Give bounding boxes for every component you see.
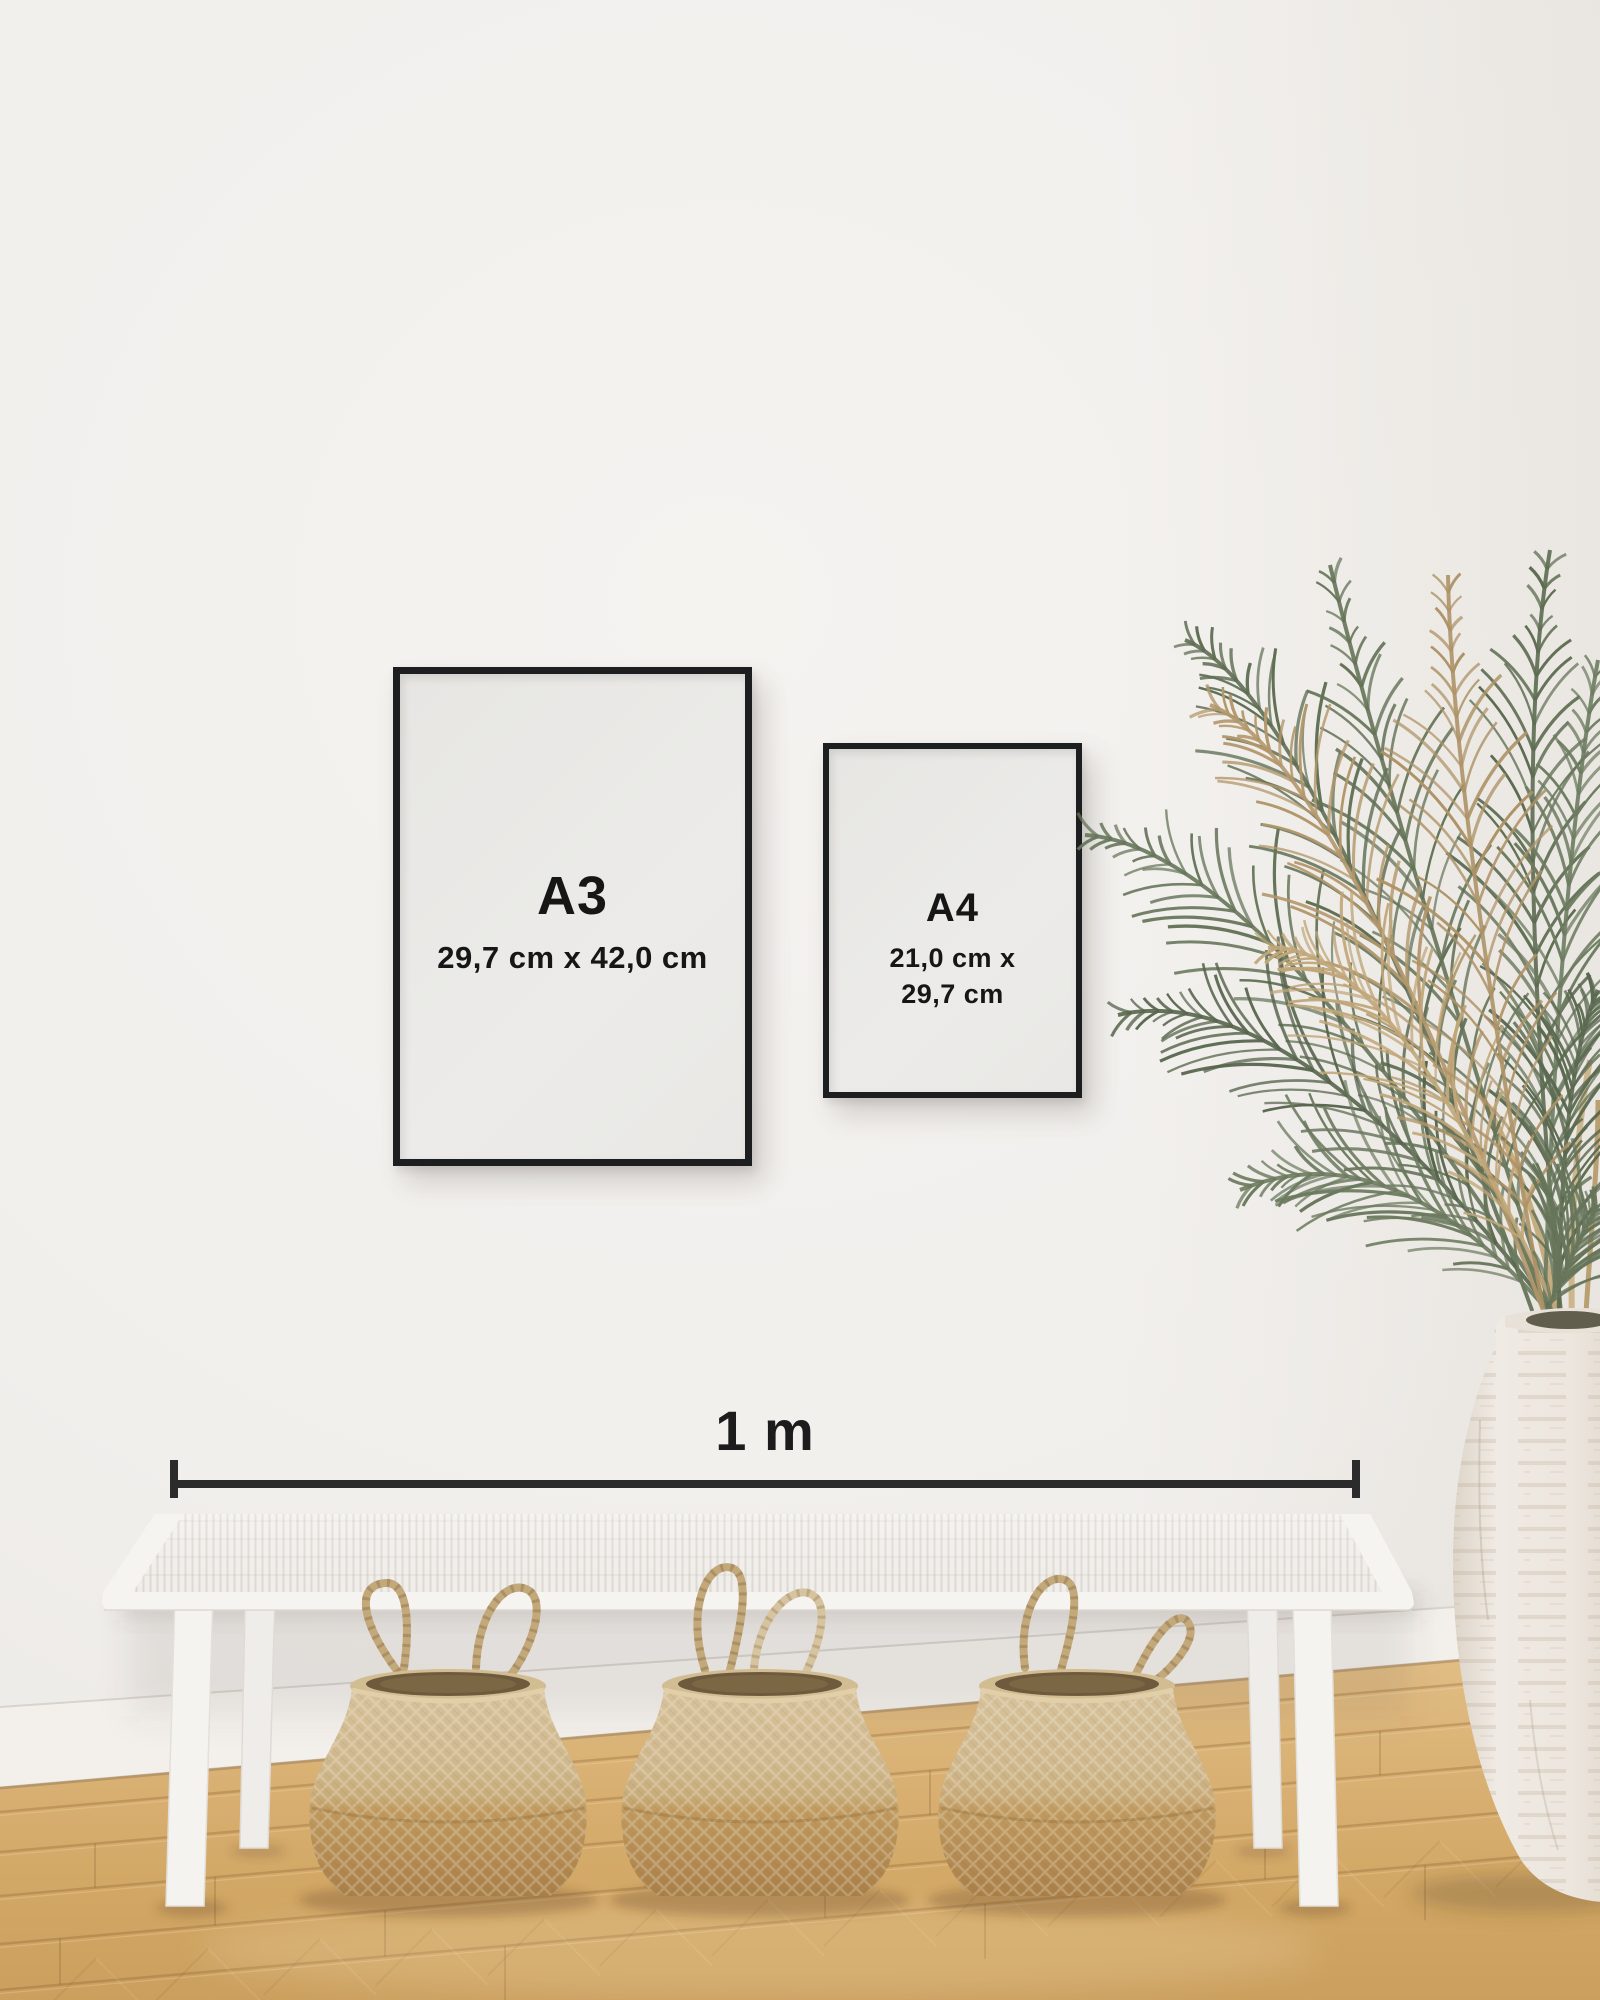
scale-bar-line — [170, 1480, 1360, 1488]
scale-bar-tick-right — [1352, 1460, 1360, 1498]
scale-bar-tick-left — [170, 1460, 178, 1498]
scale-bar-label: 1 m — [170, 1398, 1360, 1463]
frame-a4-size-label: A4 — [889, 888, 1015, 928]
frame-a4-dimensions-line1: 21,0 cm x — [889, 941, 1015, 977]
frame-a4: A4 21,0 cm x 29,7 cm — [823, 743, 1082, 1098]
room-scene: A3 29,7 cm x 42,0 cm A4 21,0 cm x 29,7 c… — [0, 0, 1600, 2000]
frame-a3: A3 29,7 cm x 42,0 cm — [393, 667, 752, 1166]
frame-a3-size-label: A3 — [437, 869, 707, 923]
frame-a4-dimensions: 21,0 cm x 29,7 cm — [889, 941, 1015, 1012]
frame-a3-dimensions: 29,7 cm x 42,0 cm — [437, 940, 707, 976]
wall — [0, 0, 1600, 2000]
frame-a3-content: A3 29,7 cm x 42,0 cm — [437, 869, 707, 976]
frame-a4-dimensions-line2: 29,7 cm — [889, 977, 1015, 1013]
scale-bar: 1 m — [170, 1398, 1360, 1498]
frame-a4-content: A4 21,0 cm x 29,7 cm — [889, 888, 1015, 1012]
